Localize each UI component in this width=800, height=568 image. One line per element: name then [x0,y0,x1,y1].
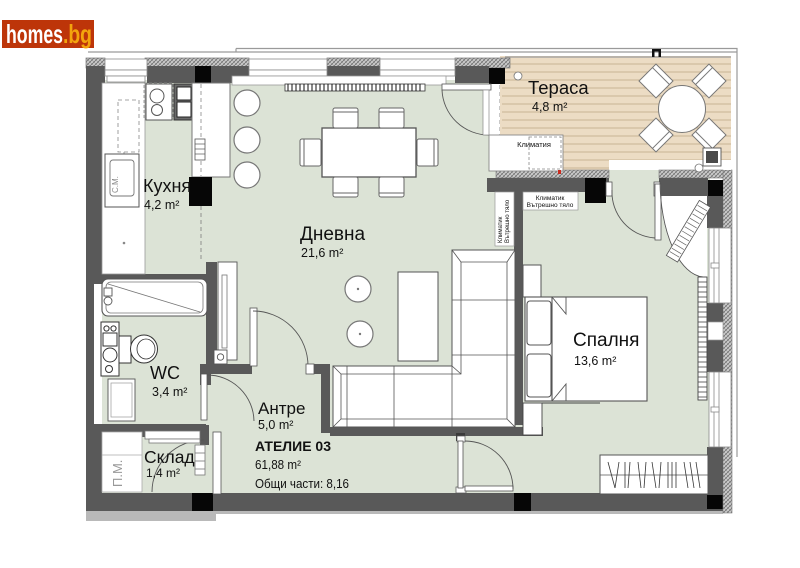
svg-text:Антре: Антре [258,399,305,418]
svg-text:Тераса: Тераса [528,77,589,98]
svg-text:АТЕЛИЕ 03: АТЕЛИЕ 03 [255,438,331,454]
svg-text:Дневна: Дневна [300,224,366,245]
svg-text:.bg: .bg [63,19,92,49]
svg-text:Вътрешно тяло: Вътрешно тяло [505,199,511,243]
svg-text:4,8 m²: 4,8 m² [532,100,567,114]
svg-text:5,0 m²: 5,0 m² [258,418,293,432]
svg-text:Общи части: 8,16: Общи части: 8,16 [255,477,349,491]
svg-text:61,88 m²: 61,88 m² [255,458,301,472]
svg-text:Климатик: Климатик [498,216,504,243]
svg-text:21,6 m²: 21,6 m² [301,246,343,260]
svg-text:Вътрешно тяло: Вътрешно тяло [527,202,574,209]
svg-text:4,2 m²: 4,2 m² [144,198,179,212]
svg-text:Кухня: Кухня [143,176,191,196]
svg-text:П.М.: П.М. [110,460,125,487]
svg-text:3,4 m²: 3,4 m² [152,385,187,399]
svg-text:13,6 m²: 13,6 m² [574,354,616,368]
svg-text:Склад: Склад [144,447,195,467]
svg-text:homes: homes [6,19,63,49]
svg-text:1,4 m²: 1,4 m² [146,466,180,480]
svg-text:WC: WC [150,363,180,383]
svg-text:С.М.: С.М. [111,176,120,193]
svg-text:Спалня: Спалня [573,330,639,351]
svg-text:Климатия: Климатия [517,140,551,149]
svg-text:Климатик: Климатик [536,195,565,202]
